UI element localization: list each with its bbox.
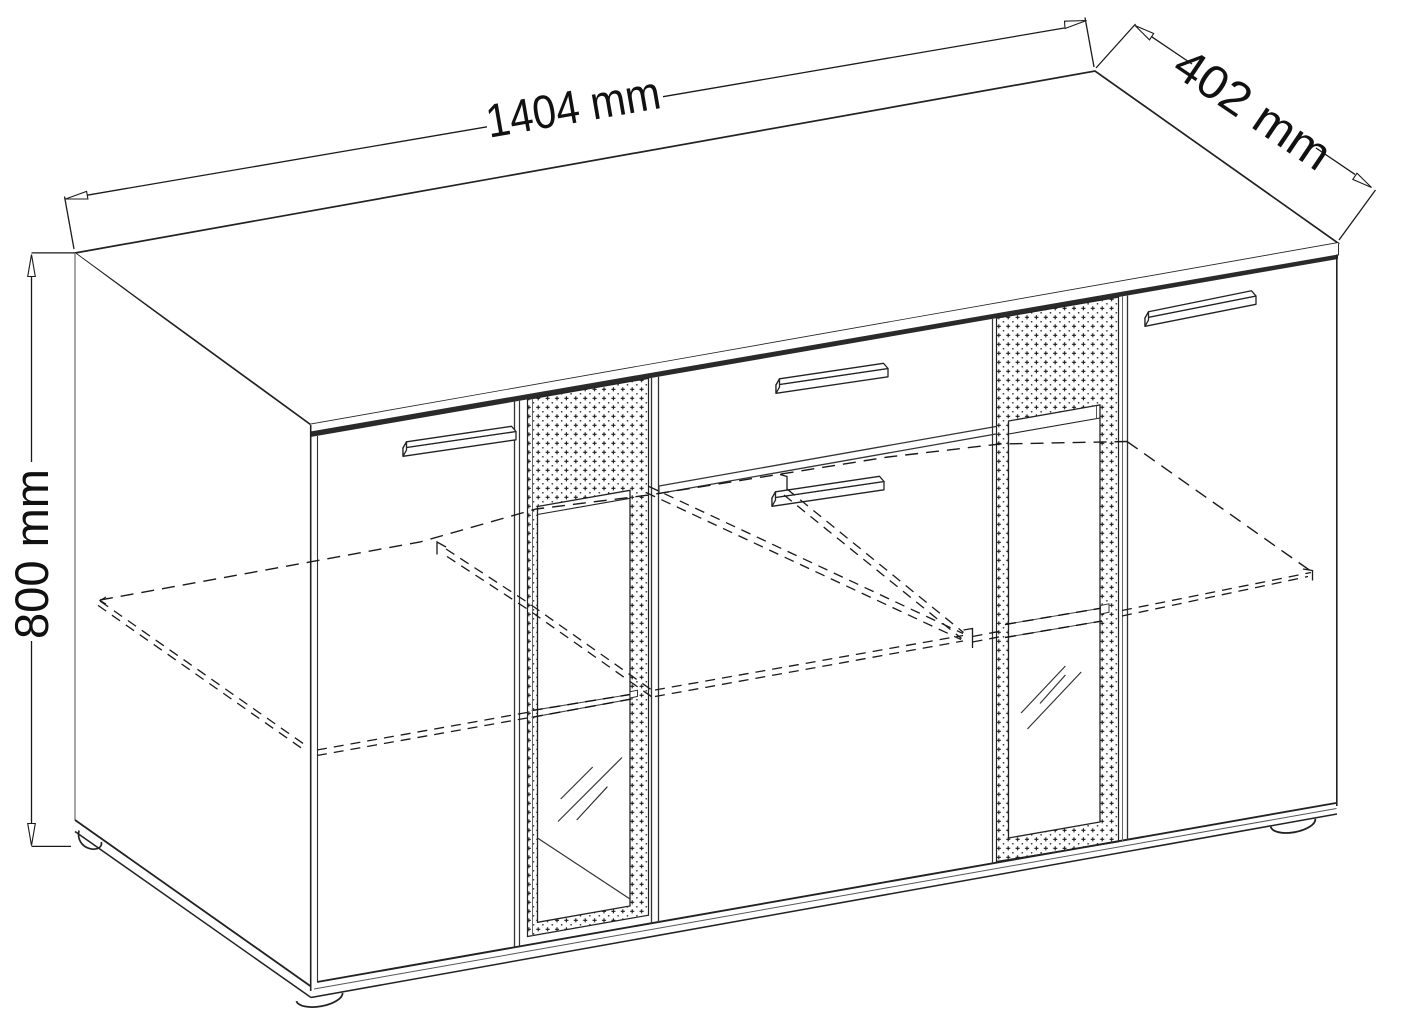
svg-text:800 mm: 800 mm	[5, 469, 58, 639]
